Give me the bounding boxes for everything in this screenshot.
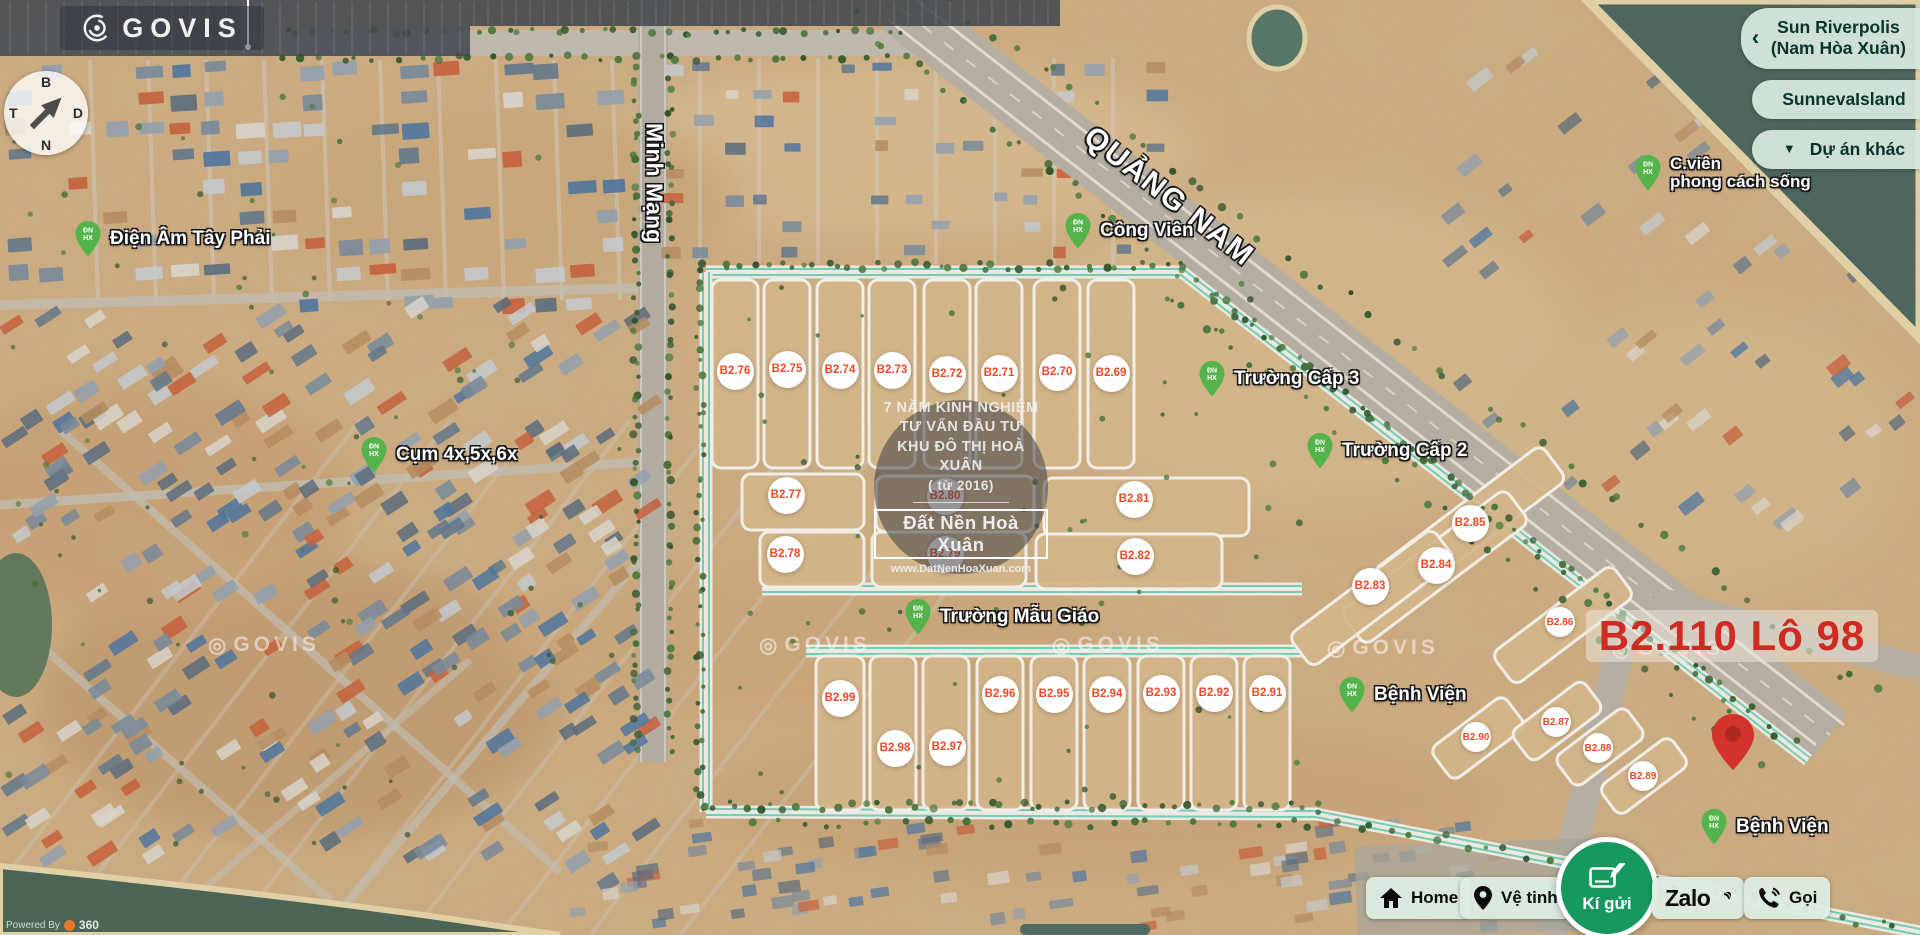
lot-marker[interactable]: B2.97 — [929, 729, 966, 766]
govis-watermark: ◎GOVIS — [1327, 636, 1439, 660]
road-label-minh-mang: Minh Mạng — [641, 123, 668, 243]
poi-marker[interactable]: ĐN HXTrường Mẫu Giáo — [904, 598, 1099, 636]
govis-watermark: ◎GOVIS — [1052, 633, 1164, 657]
lot-marker[interactable]: B2.88 — [1583, 733, 1613, 763]
poi-label: Bệnh Viện — [1736, 817, 1829, 838]
compass-north-label: B — [41, 74, 51, 90]
svg-text:ĐN: ĐN — [1709, 816, 1719, 823]
watermark-divider — [913, 502, 1009, 503]
experience-watermark: 7 NĂM KINH NGHIỆM TƯ VẤN ĐẦU TƯ KHU ĐÔ T… — [874, 400, 1048, 574]
project-nav-label: Dự án khác — [1810, 139, 1905, 159]
poi-pin-icon[interactable]: ĐN HX — [904, 598, 932, 636]
govis-logo-text: GOVIS — [122, 13, 243, 44]
svg-text:HX: HX — [1709, 823, 1719, 830]
watermark-url: www.DatNenHoaXuan.com — [891, 563, 1031, 575]
lot-marker[interactable]: B2.77 — [768, 477, 805, 514]
powered-logo-icon — [64, 920, 75, 931]
svg-text:HX: HX — [1315, 447, 1325, 454]
satellite-toggle-button[interactable]: Vệ tinh — [1460, 877, 1571, 919]
govis-logo: GOVIS — [60, 6, 264, 50]
lot-marker[interactable]: B2.87 — [1541, 707, 1571, 737]
phone-icon — [1757, 886, 1781, 910]
poi-label: Cụm 4x,5x,6x — [396, 445, 517, 466]
home-icon — [1379, 887, 1403, 909]
svg-text:ĐN: ĐN — [1073, 220, 1083, 227]
lot-marker[interactable]: B2.73 — [874, 352, 911, 389]
compass-west-label: T — [9, 105, 18, 121]
caret-down-icon: ▼ — [1783, 141, 1796, 156]
map-stage[interactable]: ◎GOVIS◎GOVIS◎GOVIS◎GOVIS◎GOVIS B2.76B2.7… — [0, 0, 1920, 935]
lot-marker[interactable]: B2.76 — [717, 353, 754, 390]
poi-pin-icon[interactable]: ĐN HX — [74, 220, 102, 258]
note-pencil-icon — [1589, 863, 1625, 891]
lot-marker[interactable]: B2.81 — [1116, 481, 1153, 518]
call-button[interactable]: Gọi — [1744, 877, 1830, 919]
govis-spiral-icon: ◎ — [1327, 638, 1345, 659]
svg-text:HX: HX — [913, 613, 923, 620]
poi-marker[interactable]: ĐN HXBệnh Viện — [1338, 676, 1467, 714]
selected-lot-label: B2.110 Lô 98 — [1599, 612, 1865, 660]
lot-marker[interactable]: B2.90 — [1461, 722, 1491, 752]
compass-east-label: D — [73, 105, 83, 121]
poi-marker[interactable]: ĐN HXCông Viên — [1064, 212, 1194, 250]
poi-pin-icon[interactable]: ĐN HX — [360, 436, 388, 474]
satellite-button-label: Vệ tinh — [1501, 888, 1558, 908]
project-nav-label: SunnevaIsland — [1782, 89, 1906, 109]
poi-label: Công Viên — [1100, 221, 1194, 242]
lot-marker[interactable]: B2.93 — [1143, 675, 1180, 712]
poi-label: Bệnh Viện — [1374, 685, 1467, 706]
watermark-line: ( từ 2016) — [928, 477, 994, 495]
svg-text:ĐN: ĐN — [1315, 440, 1325, 447]
lot-marker[interactable]: B2.84 — [1418, 547, 1455, 584]
zalo-signal-icon — [1718, 892, 1731, 905]
svg-text:ĐN: ĐN — [83, 228, 93, 235]
lot-marker[interactable]: B2.75 — [769, 351, 806, 388]
lot-marker[interactable]: B2.82 — [1117, 538, 1154, 575]
project-nav-button[interactable]: ▼Dự án khác — [1752, 130, 1920, 169]
compass: B N T D — [4, 71, 88, 155]
project-nav-label: Sun Riverpolis (Nam Hòa Xuân) — [1771, 17, 1906, 58]
lot-marker[interactable]: B2.99 — [822, 680, 859, 717]
call-button-label: Gọi — [1789, 888, 1817, 908]
watermark-line: TƯ VẤN ĐẦU TƯ — [900, 418, 1022, 438]
poi-label: Trường Mẫu Giáo — [940, 607, 1099, 628]
poi-marker[interactable]: ĐN HXCụm 4x,5x,6x — [360, 436, 517, 474]
lot-marker[interactable]: B2.72 — [929, 356, 966, 393]
svg-text:ĐN: ĐN — [913, 606, 923, 613]
govis-spiral-icon: ◎ — [208, 635, 226, 656]
svg-text:HX: HX — [369, 451, 379, 458]
zalo-button[interactable]: Zalo — [1652, 877, 1744, 919]
poi-pin-icon[interactable]: ĐN HX — [1306, 432, 1334, 470]
watermark-line: 7 NĂM KINH NGHIỆM — [883, 399, 1038, 419]
lot-marker[interactable]: B2.91 — [1249, 675, 1286, 712]
map-pin-icon — [1473, 885, 1493, 911]
lot-marker[interactable]: B2.70 — [1039, 354, 1076, 391]
home-button[interactable]: Home — [1366, 877, 1471, 919]
govis-spiral-icon: ◎ — [759, 635, 777, 656]
poi-label: Trường Cấp 3 — [1234, 369, 1359, 390]
lot-marker[interactable]: B2.98 — [877, 730, 914, 767]
svg-text:HX: HX — [1643, 169, 1653, 176]
lot-marker[interactable]: B2.78 — [767, 536, 804, 573]
lot-marker[interactable]: B2.86 — [1545, 607, 1575, 637]
poi-marker[interactable]: ĐN HXĐiện Âm Tây Phải — [74, 220, 271, 258]
lot-marker[interactable]: B2.96 — [982, 676, 1019, 713]
selected-lot-banner: B2.110 Lô 98 — [1586, 610, 1878, 662]
lot-marker[interactable]: B2.85 — [1452, 505, 1489, 542]
govis-spiral-icon — [81, 12, 113, 44]
home-button-label: Home — [1411, 888, 1458, 908]
powered-by: Powered By 360 — [6, 918, 99, 932]
zalo-logo: Zalo — [1665, 885, 1710, 912]
svg-text:ĐN: ĐN — [1207, 368, 1217, 375]
lot-marker[interactable]: B2.89 — [1628, 761, 1658, 791]
svg-text:ĐN: ĐN — [1347, 684, 1357, 691]
selected-lot-pin[interactable] — [1711, 712, 1755, 772]
govis-spiral-icon: ◎ — [1052, 635, 1070, 656]
lot-marker[interactable]: B2.95 — [1036, 676, 1073, 713]
govis-watermark: ◎GOVIS — [759, 633, 871, 657]
compass-south-label: N — [41, 137, 51, 153]
poi-pin-icon[interactable]: ĐN HX — [1338, 676, 1366, 714]
svg-text:HX: HX — [1073, 227, 1083, 234]
poi-marker[interactable]: ĐN HXTrường Cấp 3 — [1198, 360, 1359, 398]
poi-pin-icon[interactable]: ĐN HX — [1064, 212, 1092, 250]
govis-watermark: ◎GOVIS — [208, 633, 320, 657]
lot-marker[interactable]: B2.74 — [822, 352, 859, 389]
lot-marker[interactable]: B2.92 — [1196, 675, 1233, 712]
lot-marker[interactable]: B2.69 — [1093, 355, 1130, 392]
consign-button-label: Kí gửi — [1582, 894, 1631, 914]
project-nav-button[interactable]: SunnevaIsland — [1752, 80, 1920, 119]
svg-text:HX: HX — [1347, 691, 1357, 698]
poi-label: Điện Âm Tây Phải — [110, 229, 271, 250]
poi-pin-icon[interactable]: ĐN HX — [1700, 808, 1728, 846]
poi-marker[interactable]: ĐN HXBệnh Viện — [1700, 808, 1829, 846]
poi-label: Trường Cấp 2 — [1342, 441, 1467, 462]
lot-marker[interactable]: B2.71 — [981, 355, 1018, 392]
lot-marker[interactable]: B2.94 — [1089, 676, 1126, 713]
poi-pin-icon[interactable]: ĐN HX — [1634, 154, 1662, 192]
watermark-brand: Đất Nền Hoà Xuân — [874, 509, 1048, 559]
svg-text:HX: HX — [83, 235, 93, 242]
svg-text:ĐN: ĐN — [369, 444, 379, 451]
project-nav-button[interactable]: ‹Sun Riverpolis (Nam Hòa Xuân) — [1741, 8, 1920, 69]
powered-by-text: Powered By — [6, 920, 60, 931]
project-nav: ‹Sun Riverpolis (Nam Hòa Xuân)SunnevaIsl… — [1741, 8, 1920, 169]
svg-text:ĐN: ĐN — [1643, 162, 1653, 169]
poi-marker[interactable]: ĐN HXTrường Cấp 2 — [1306, 432, 1467, 470]
consign-button[interactable]: Kí gửi — [1556, 837, 1658, 935]
powered-suffix: 360 — [79, 918, 99, 932]
watermark-line: KHU ĐÔ THỊ HOÀ XUÂN — [874, 438, 1048, 477]
poi-pin-icon[interactable]: ĐN HX — [1198, 360, 1226, 398]
chevron-left-icon: ‹ — [1752, 25, 1759, 52]
svg-text:HX: HX — [1207, 375, 1217, 382]
lot-marker[interactable]: B2.83 — [1352, 568, 1389, 605]
